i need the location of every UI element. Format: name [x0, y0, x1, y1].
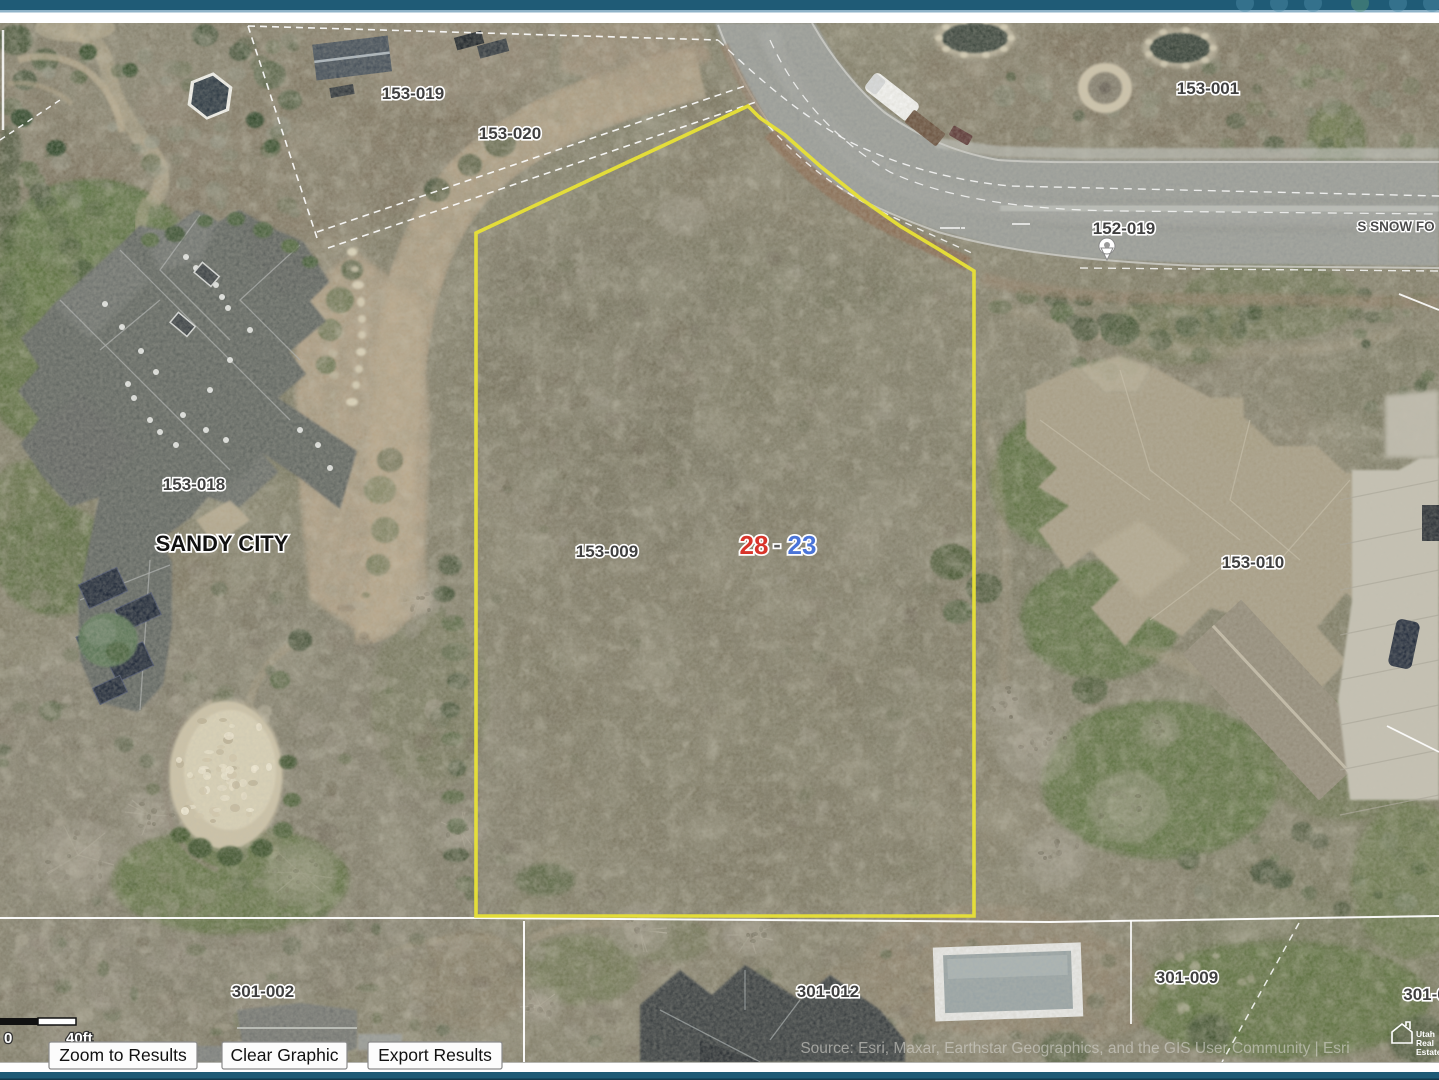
svg-text:-: -	[773, 532, 780, 557]
svg-text:301-009: 301-009	[1156, 968, 1218, 987]
svg-text:Export Results: Export Results	[378, 1045, 492, 1065]
svg-text:153-019: 153-019	[382, 84, 444, 103]
svg-text:SANDY CITY: SANDY CITY	[156, 531, 289, 556]
svg-text:Estate: Estate	[1416, 1047, 1439, 1057]
svg-text:S SNOW FO: S SNOW FO	[1357, 219, 1434, 234]
svg-text:28: 28	[740, 530, 769, 560]
svg-text:23: 23	[788, 530, 817, 560]
svg-text:Source: Esri, Maxar, Earthstar: Source: Esri, Maxar, Earthstar Geographi…	[800, 1040, 1349, 1057]
svg-text:Zoom to Results: Zoom to Results	[59, 1045, 187, 1065]
svg-text:153-020: 153-020	[479, 124, 541, 143]
svg-text:153-018: 153-018	[163, 475, 225, 494]
svg-text:Clear Graphic: Clear Graphic	[231, 1045, 339, 1065]
svg-text:152-019: 152-019	[1093, 219, 1155, 238]
svg-text:0: 0	[4, 1030, 12, 1047]
svg-text:301-002: 301-002	[232, 982, 294, 1001]
svg-text:153-009: 153-009	[576, 542, 638, 561]
svg-text:153-001: 153-001	[1177, 79, 1239, 98]
svg-text:301-012: 301-012	[797, 982, 859, 1001]
svg-text:153-010: 153-010	[1222, 553, 1284, 572]
svg-text:301-0: 301-0	[1403, 985, 1439, 1004]
